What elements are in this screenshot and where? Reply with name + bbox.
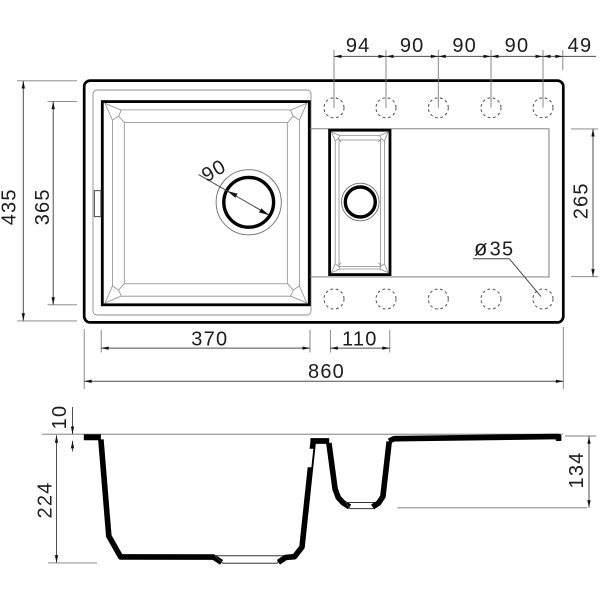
svg-text:265: 265 xyxy=(570,182,592,219)
svg-text:370: 370 xyxy=(191,328,228,350)
svg-text:94: 94 xyxy=(346,35,371,57)
svg-text:860: 860 xyxy=(308,361,345,383)
svg-text:435: 435 xyxy=(0,188,21,225)
svg-text:224: 224 xyxy=(34,482,56,519)
svg-text:49: 49 xyxy=(568,35,593,57)
svg-text:ø35: ø35 xyxy=(474,235,514,260)
svg-text:90: 90 xyxy=(505,35,530,57)
svg-text:110: 110 xyxy=(342,328,378,350)
svg-text:90: 90 xyxy=(400,35,425,57)
svg-text:365: 365 xyxy=(32,188,54,225)
svg-text:90: 90 xyxy=(452,35,477,57)
svg-text:10: 10 xyxy=(49,405,71,430)
svg-text:134: 134 xyxy=(566,452,588,489)
